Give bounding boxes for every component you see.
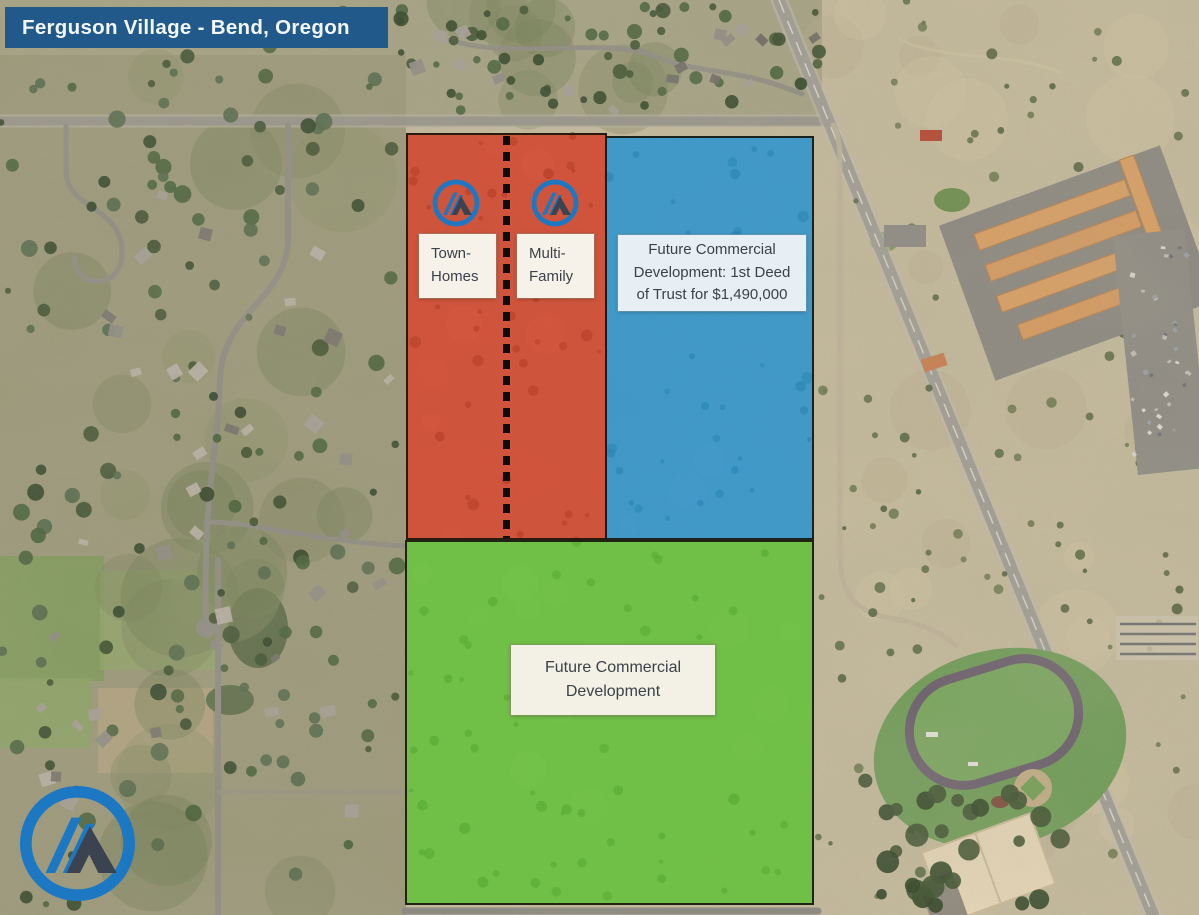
- parcel-divider-dotted-line: [503, 136, 510, 538]
- flyer-canvas: Town- Homes Multi- Family Future Commerc…: [0, 0, 1199, 915]
- brand-logo-icon: [530, 178, 580, 228]
- brand-logo-icon: [431, 178, 481, 228]
- townhomes-label: Town- Homes: [419, 234, 496, 298]
- commercial-south-label: Future Commercial Development: [511, 645, 715, 715]
- zone-commercial-northeast: [605, 136, 814, 540]
- commercial-northeast-label: Future Commercial Development: 1st Deed …: [618, 235, 806, 311]
- title-banner: Ferguson Village - Bend, Oregon: [5, 7, 388, 48]
- brand-logo-icon: [16, 782, 139, 905]
- multifamily-label: Multi- Family: [517, 234, 594, 298]
- zone-commercial-south: [405, 540, 814, 905]
- page-title: Ferguson Village - Bend, Oregon: [22, 16, 350, 40]
